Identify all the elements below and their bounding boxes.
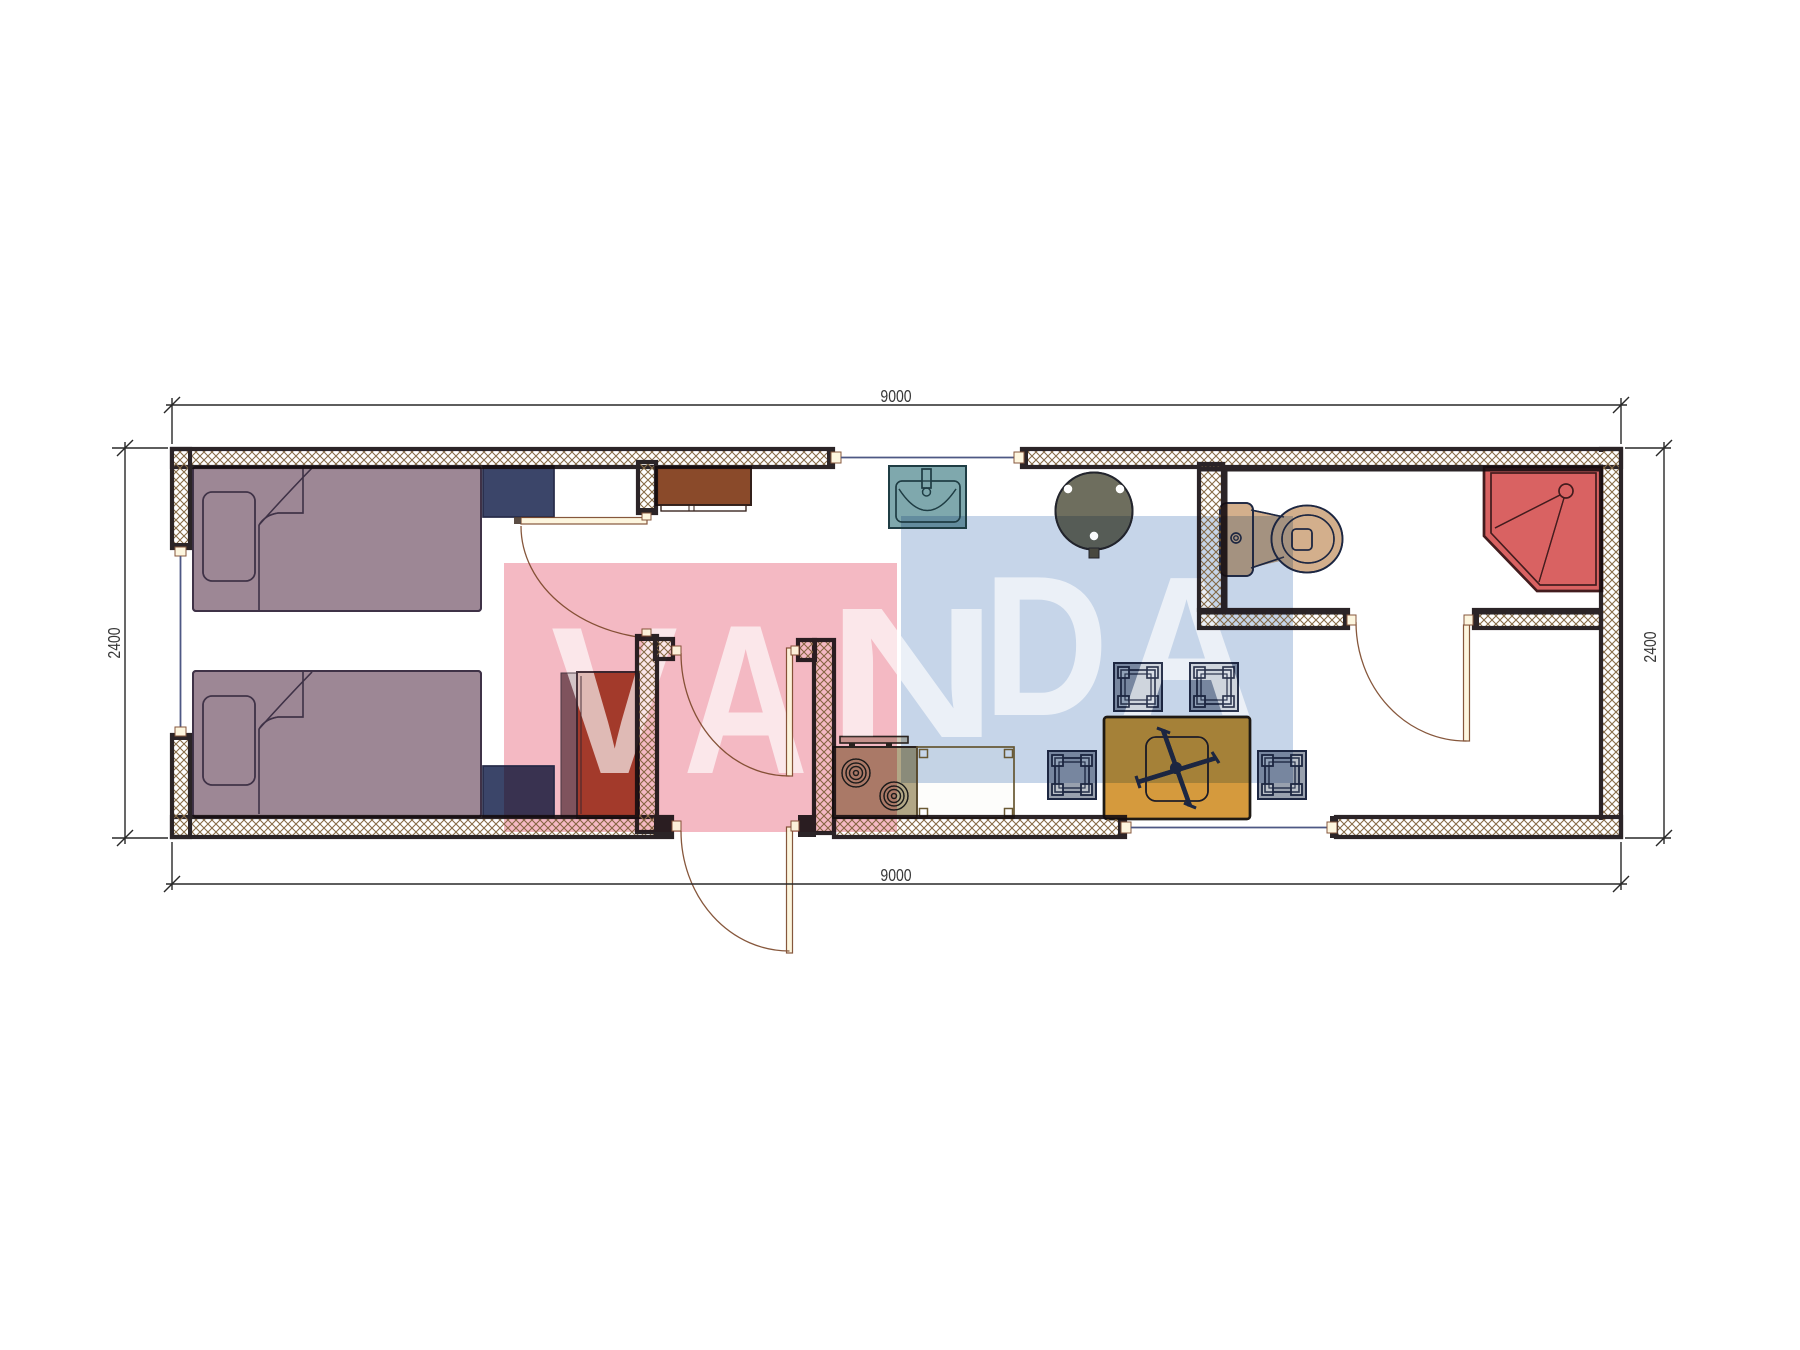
svg-text:2400: 2400: [104, 627, 124, 658]
svg-text:9000: 9000: [880, 865, 911, 885]
svg-text:9000: 9000: [880, 386, 911, 406]
svg-text:2400: 2400: [1640, 631, 1660, 662]
